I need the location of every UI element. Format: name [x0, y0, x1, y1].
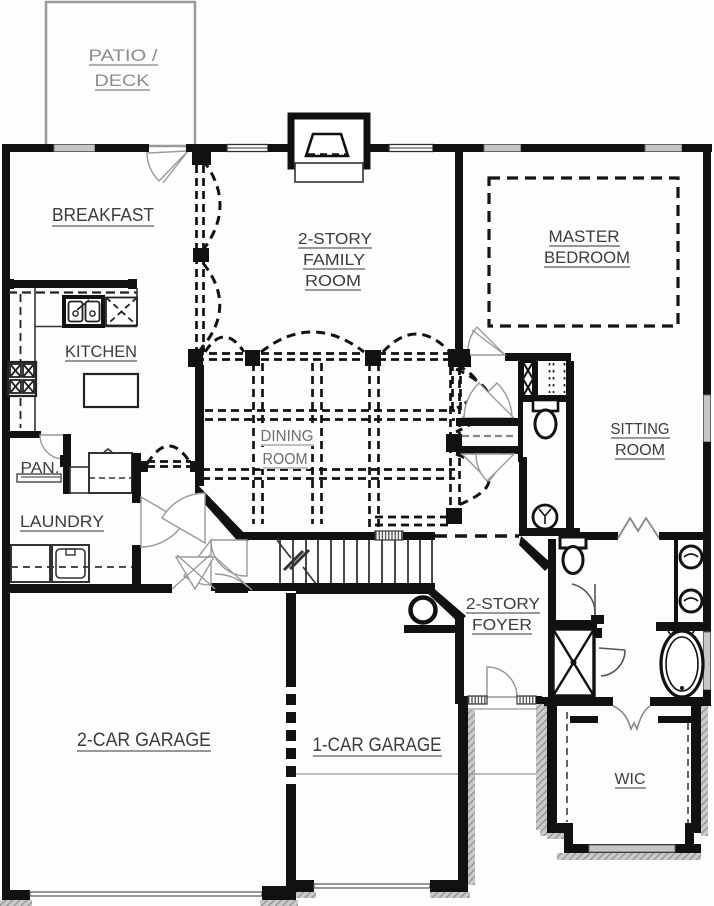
svg-text:2-STORY: 2-STORY: [466, 596, 540, 613]
svg-text:PATIO /: PATIO /: [89, 46, 158, 65]
svg-text:2-STORY: 2-STORY: [298, 231, 372, 248]
svg-text:MASTER: MASTER: [549, 227, 620, 246]
svg-text:DECK: DECK: [95, 71, 151, 90]
svg-text:ROOM: ROOM: [263, 451, 308, 468]
svg-text:WIC: WIC: [615, 771, 646, 788]
svg-text:DINING: DINING: [261, 428, 314, 445]
svg-text:LAUNDRY: LAUNDRY: [20, 512, 104, 531]
svg-text:BEDROOM: BEDROOM: [544, 248, 630, 267]
svg-text:SITTING: SITTING: [611, 421, 670, 438]
svg-text:ROOM: ROOM: [615, 442, 665, 459]
svg-text:FOYER: FOYER: [472, 617, 532, 634]
svg-text:BREAKFAST: BREAKFAST: [52, 205, 154, 225]
svg-text:KITCHEN: KITCHEN: [65, 342, 137, 361]
svg-text:2-CAR GARAGE: 2-CAR GARAGE: [77, 730, 211, 751]
svg-text:ROOM: ROOM: [305, 273, 361, 290]
svg-text:PAN.: PAN.: [21, 460, 60, 477]
svg-text:FAMILY: FAMILY: [303, 252, 365, 269]
svg-text:1-CAR GARAGE: 1-CAR GARAGE: [313, 735, 442, 756]
